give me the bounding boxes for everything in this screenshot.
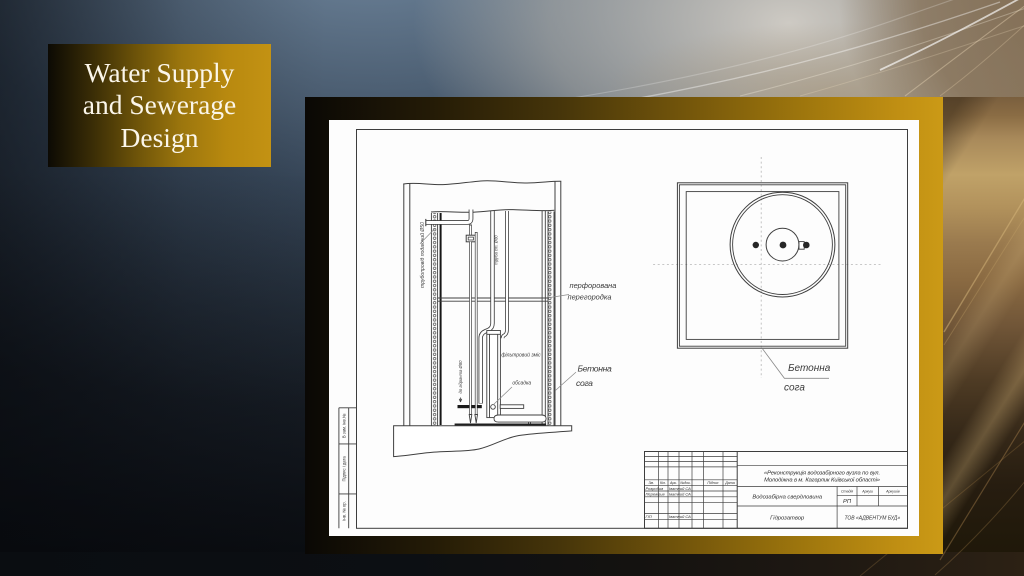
svg-text:Кіл.: Кіл.: [660, 481, 666, 485]
svg-text:труба ст. Ø80: труба ст. Ø80: [494, 235, 499, 265]
svg-text:Підпис і дата: Підпис і дата: [342, 456, 347, 482]
svg-text:Іватний СА: Іватний СА: [669, 486, 691, 491]
svg-text:Водозабірна свердловина: Водозабірна свердловина: [752, 495, 822, 501]
svg-text:перегородка: перегородка: [568, 293, 612, 302]
svg-text:до гідранта Ø80: до гідранта Ø80: [458, 360, 463, 394]
svg-text:Арк.: Арк.: [669, 481, 677, 485]
svg-text:Підпис: Підпис: [707, 481, 718, 485]
svg-text:перфорована: перфорована: [570, 281, 617, 290]
svg-text:Бетонна: Бетонна: [788, 363, 831, 374]
svg-text:В зам. інв.№: В зам. інв.№: [342, 413, 347, 438]
svg-text:ГІП: ГІП: [646, 514, 652, 519]
svg-text:Гідрозатвор: Гідрозатвор: [770, 516, 805, 522]
svg-text:сога: сога: [576, 378, 593, 388]
svg-text:Розробив: Розробив: [646, 486, 664, 491]
svg-text:Інв. № ор.: Інв. № ор.: [342, 501, 347, 521]
svg-text:Дата: Дата: [724, 481, 734, 485]
svg-text:Молодіжна в м. Кагарлик Київсь: Молодіжна в м. Кагарлик Київської област…: [764, 478, 880, 484]
svg-text:Іватний СА: Іватний СА: [669, 492, 691, 497]
svg-text:ТОВ «АДВЕНТУМ БУД»: ТОВ «АДВЕНТУМ БУД»: [844, 516, 900, 522]
svg-text:№док.: №док.: [680, 481, 691, 485]
svg-text:трубопровід подаючий Ø50: трубопровід подаючий Ø50: [419, 222, 426, 288]
svg-text:Стадія: Стадія: [841, 489, 853, 493]
svg-text:Зм.: Зм.: [648, 481, 654, 485]
svg-text:Аркушів: Аркушів: [885, 489, 900, 493]
svg-text:сога: сога: [784, 383, 805, 394]
svg-text:Аркуш: Аркуш: [861, 489, 873, 493]
svg-text:«Реконструкція водозабірного в: «Реконструкція водозабірного вузла по ву…: [764, 471, 880, 477]
svg-text:обсадка: обсадка: [512, 381, 531, 387]
svg-text:Бетонна: Бетонна: [578, 364, 612, 374]
svg-text:Перевірив: Перевірив: [646, 492, 665, 497]
svg-text:Іватний СА: Іватний СА: [669, 514, 691, 519]
svg-text:фільтровий зміс: фільтровий зміс: [501, 352, 541, 359]
svg-text:РП: РП: [843, 499, 852, 505]
